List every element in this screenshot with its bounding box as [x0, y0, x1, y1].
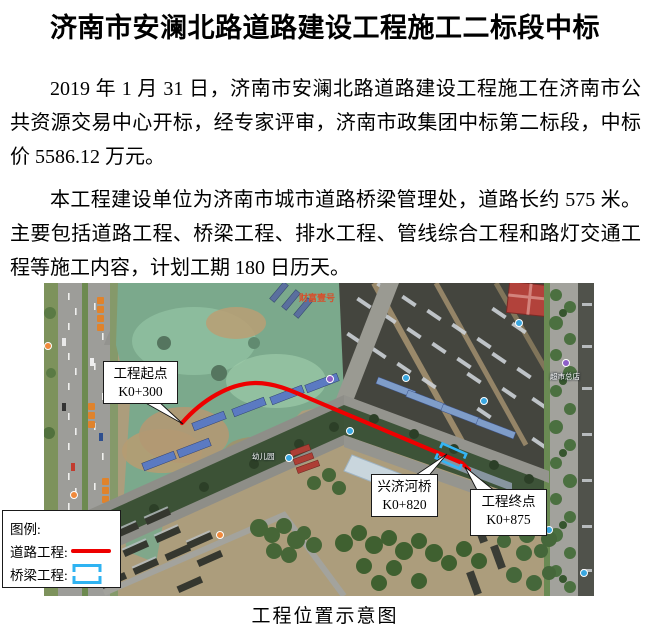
- satellite-map-image: [44, 283, 594, 596]
- legend-title: 图例:: [10, 516, 120, 539]
- callout-end-name: 工程终点: [471, 493, 546, 511]
- paragraph-2: 本工程建设单位为济南市城市道路桥梁管理处，道路长约 575 米。主要包括道路工程…: [10, 183, 641, 285]
- callout-start-chainage: K0+300: [104, 383, 177, 401]
- map-label-caifuyihao: 财富壹号: [299, 291, 335, 304]
- callout-start-name: 工程起点: [104, 365, 177, 383]
- callout-xingji-river-bridge: 兴济河桥 K0+820: [371, 474, 438, 517]
- callout-end-chainage: K0+875: [471, 511, 546, 529]
- callout-bridge-chainage: K0+820: [372, 496, 437, 514]
- document-page: 济南市安澜北路道路建设工程施工二标段中标 2019 年 1 月 31 日，济南市…: [0, 0, 650, 630]
- callout-bridge-name: 兴济河桥: [372, 478, 437, 496]
- paragraph-1: 2019 年 1 月 31 日，济南市安澜北路道路建设工程施工在济南市公共资源交…: [10, 72, 641, 174]
- callout-project-start: 工程起点 K0+300: [103, 361, 178, 404]
- legend-bridge-label: 桥梁工程:: [10, 564, 68, 584]
- figure-caption: 工程位置示意图: [0, 601, 650, 628]
- legend-road-line-swatch: [71, 549, 111, 553]
- map-legend: 图例: 道路工程: 桥梁工程:: [2, 510, 121, 588]
- map-label-kindergarten: 幼儿园: [252, 451, 275, 462]
- map-label-supermarket: 超市总店: [550, 371, 580, 382]
- legend-bridge-symbol-icon: [71, 562, 103, 586]
- callout-project-end: 工程终点 K0+875: [470, 489, 547, 536]
- legend-road-label: 道路工程:: [10, 541, 68, 561]
- location-map-figure: 财富壹号 幼儿园 超市总店 交苑佳缘小区 工程起点 K0+300 兴济河桥 K0…: [44, 283, 594, 596]
- page-title: 济南市安澜北路道路建设工程施工二标段中标: [0, 6, 650, 45]
